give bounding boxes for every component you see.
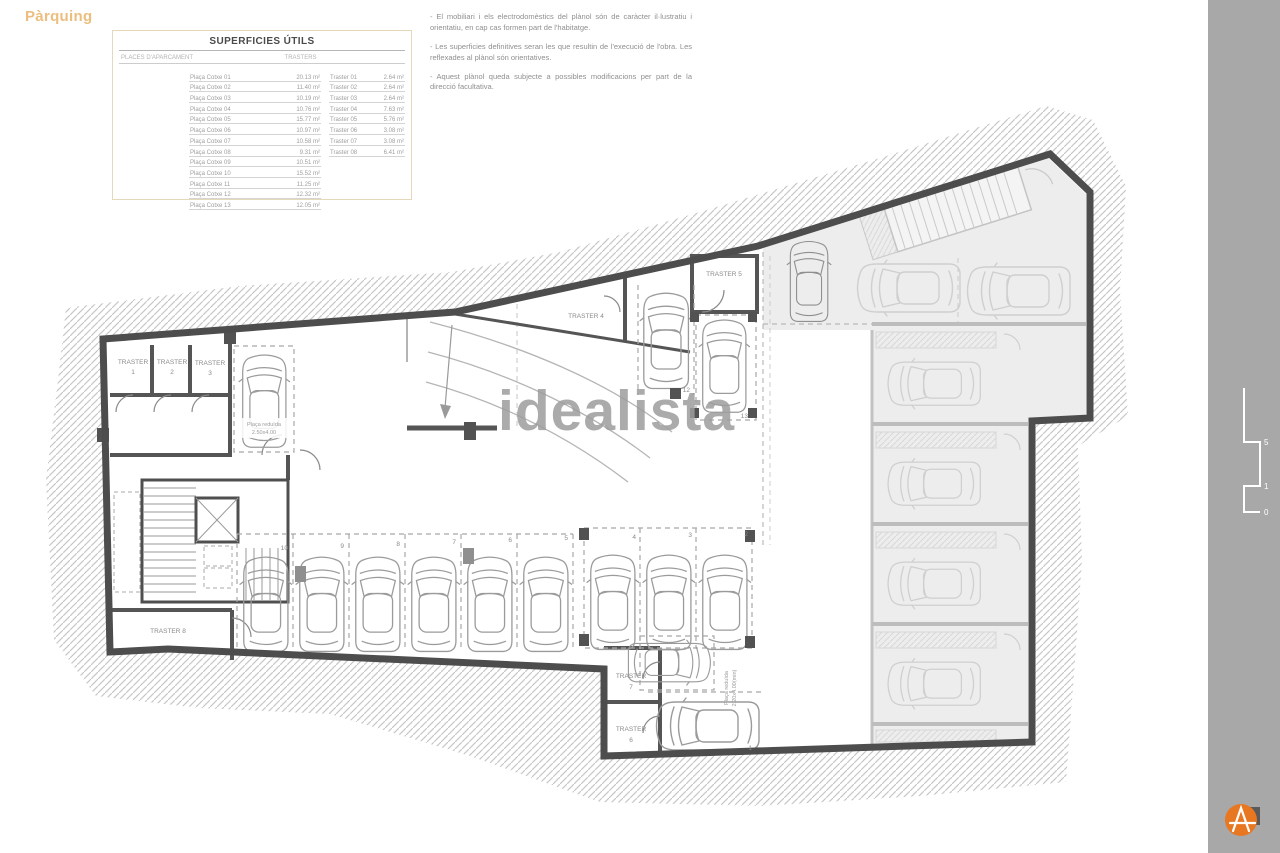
table-row: Plaça Cotxe 0310.19 m²	[189, 92, 321, 103]
traster-label: TRASTER 5	[706, 271, 742, 278]
traster-number: 6	[629, 737, 633, 744]
traster-label: TRASTER	[118, 359, 149, 366]
traster-number: 2	[170, 369, 174, 376]
space-number: 5	[564, 535, 568, 542]
table-header: PLACES D'APARCAMENT TRASTERS	[119, 54, 405, 64]
table-row: Traster 032.64 m²	[329, 92, 405, 103]
blueprint-page: Pàrquing SUPERFICIES ÚTILS PLACES D'APAR…	[0, 0, 1280, 853]
traster-label: TRASTER	[616, 726, 647, 733]
idealista-watermark: idealista	[498, 378, 735, 444]
graphic-scale: 5 1 0	[1236, 384, 1276, 534]
table-row: Traster 073.08 m²	[329, 135, 405, 146]
note: - Aquest plànol queda subjecte a possibl…	[430, 72, 692, 94]
space-number: 13	[741, 413, 749, 420]
traster-label: TRASTER	[157, 359, 188, 366]
table-row: Traster 055.76 m²	[329, 114, 405, 125]
table-row: Plaça Cotxe 089.31 m²	[189, 146, 321, 157]
table-row: Traster 086.41 m²	[329, 146, 405, 157]
traster-label: TRASTER 4	[568, 313, 604, 320]
space-number: 10	[281, 545, 289, 552]
trasters-column: Traster 012.64 m² Traster 022.64 m² Tras…	[329, 71, 405, 157]
space-number: 6	[508, 537, 512, 544]
table-row: Plaça Cotxe 0610.97 m²	[189, 124, 321, 135]
space-number: 8	[396, 541, 400, 548]
table-row: Plaça Cotxe 1111.25 m²	[189, 178, 321, 189]
traster-number: 7	[629, 684, 633, 691]
col-header-trasters: TRASTERS	[285, 55, 317, 61]
builder-logo-icon	[1222, 800, 1260, 840]
table-title: SUPERFICIES ÚTILS	[119, 36, 405, 51]
space-number: 4	[632, 534, 636, 541]
space-number: 7	[452, 539, 456, 546]
table-row: Traster 047.63 m²	[329, 103, 405, 114]
plan-notes: - El mobiliari i els electrodomèstics de…	[430, 12, 692, 101]
space-number: 2	[744, 531, 748, 538]
space-number: 9	[340, 543, 344, 550]
reduced-space-label: 2.20x4.00(min)	[732, 669, 738, 706]
table-row: Plaça Cotxe 0710.58 m²	[189, 135, 321, 146]
traster-number: 3	[208, 370, 212, 377]
scale-tick: 1	[1264, 482, 1269, 491]
table-row: Plaça Cotxe 1015.52 m²	[189, 167, 321, 178]
col-header-places: PLACES D'APARCAMENT	[121, 55, 285, 61]
table-row: Plaça Cotxe 0515.77 m²	[189, 114, 321, 125]
table-row: Plaça Cotxe 0910.51 m²	[189, 157, 321, 168]
table-row: Traster 022.64 m²	[329, 82, 405, 93]
places-column: Plaça Cotxe 0120.13 m² Plaça Cotxe 0211.…	[189, 71, 321, 210]
table-row: Plaça Cotxe 0410.76 m²	[189, 103, 321, 114]
table-row: Plaça Cotxe 1312.05 m²	[189, 199, 321, 210]
note: - Les superficies definitives seran les …	[430, 42, 692, 64]
note: - El mobiliari i els electrodomèstics de…	[430, 12, 692, 34]
traster-label: TRASTER	[195, 360, 226, 367]
space-number: 3	[688, 532, 692, 539]
traster-number: 1	[131, 369, 135, 376]
table-row: Plaça Cotxe 1212.32 m²	[189, 189, 321, 200]
traster-label: TRASTER 8	[150, 628, 186, 635]
table-row: Traster 063.08 m²	[329, 124, 405, 135]
table-row: Plaça Cotxe 0120.13 m²	[189, 71, 321, 82]
table-row: Plaça Cotxe 0211.40 m²	[189, 82, 321, 93]
table-row: Traster 012.64 m²	[329, 71, 405, 82]
space-number: 1	[748, 745, 752, 752]
surfaces-table: SUPERFICIES ÚTILS PLACES D'APARCAMENT TR…	[112, 30, 412, 200]
reduced-space-label: Plaça reduïda	[724, 670, 730, 705]
reduced-space-label: 2.50x4.00	[252, 430, 276, 436]
scale-tick: 0	[1264, 508, 1269, 517]
reduced-space-label: Plaça reduïda	[247, 422, 282, 428]
scale-tick: 5	[1264, 438, 1269, 447]
traster-label: TRASTER	[616, 673, 647, 680]
